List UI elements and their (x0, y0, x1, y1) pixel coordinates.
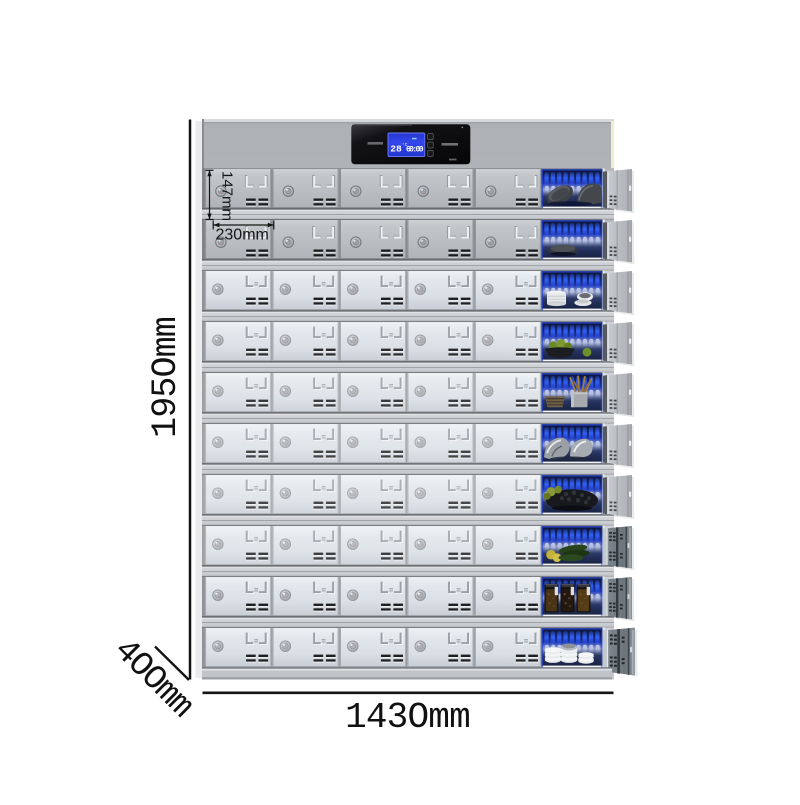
svg-text:230mm: 230mm (216, 227, 269, 244)
svg-text:60:00: 60:00 (406, 145, 424, 154)
svg-text:4OOmm: 4OOmm (106, 632, 200, 726)
svg-text:147mm: 147mm (219, 171, 236, 221)
svg-text:28: 28 (390, 143, 402, 154)
svg-text:195Omm: 195Omm (146, 317, 186, 438)
svg-text:143Omm: 143Omm (345, 697, 470, 738)
